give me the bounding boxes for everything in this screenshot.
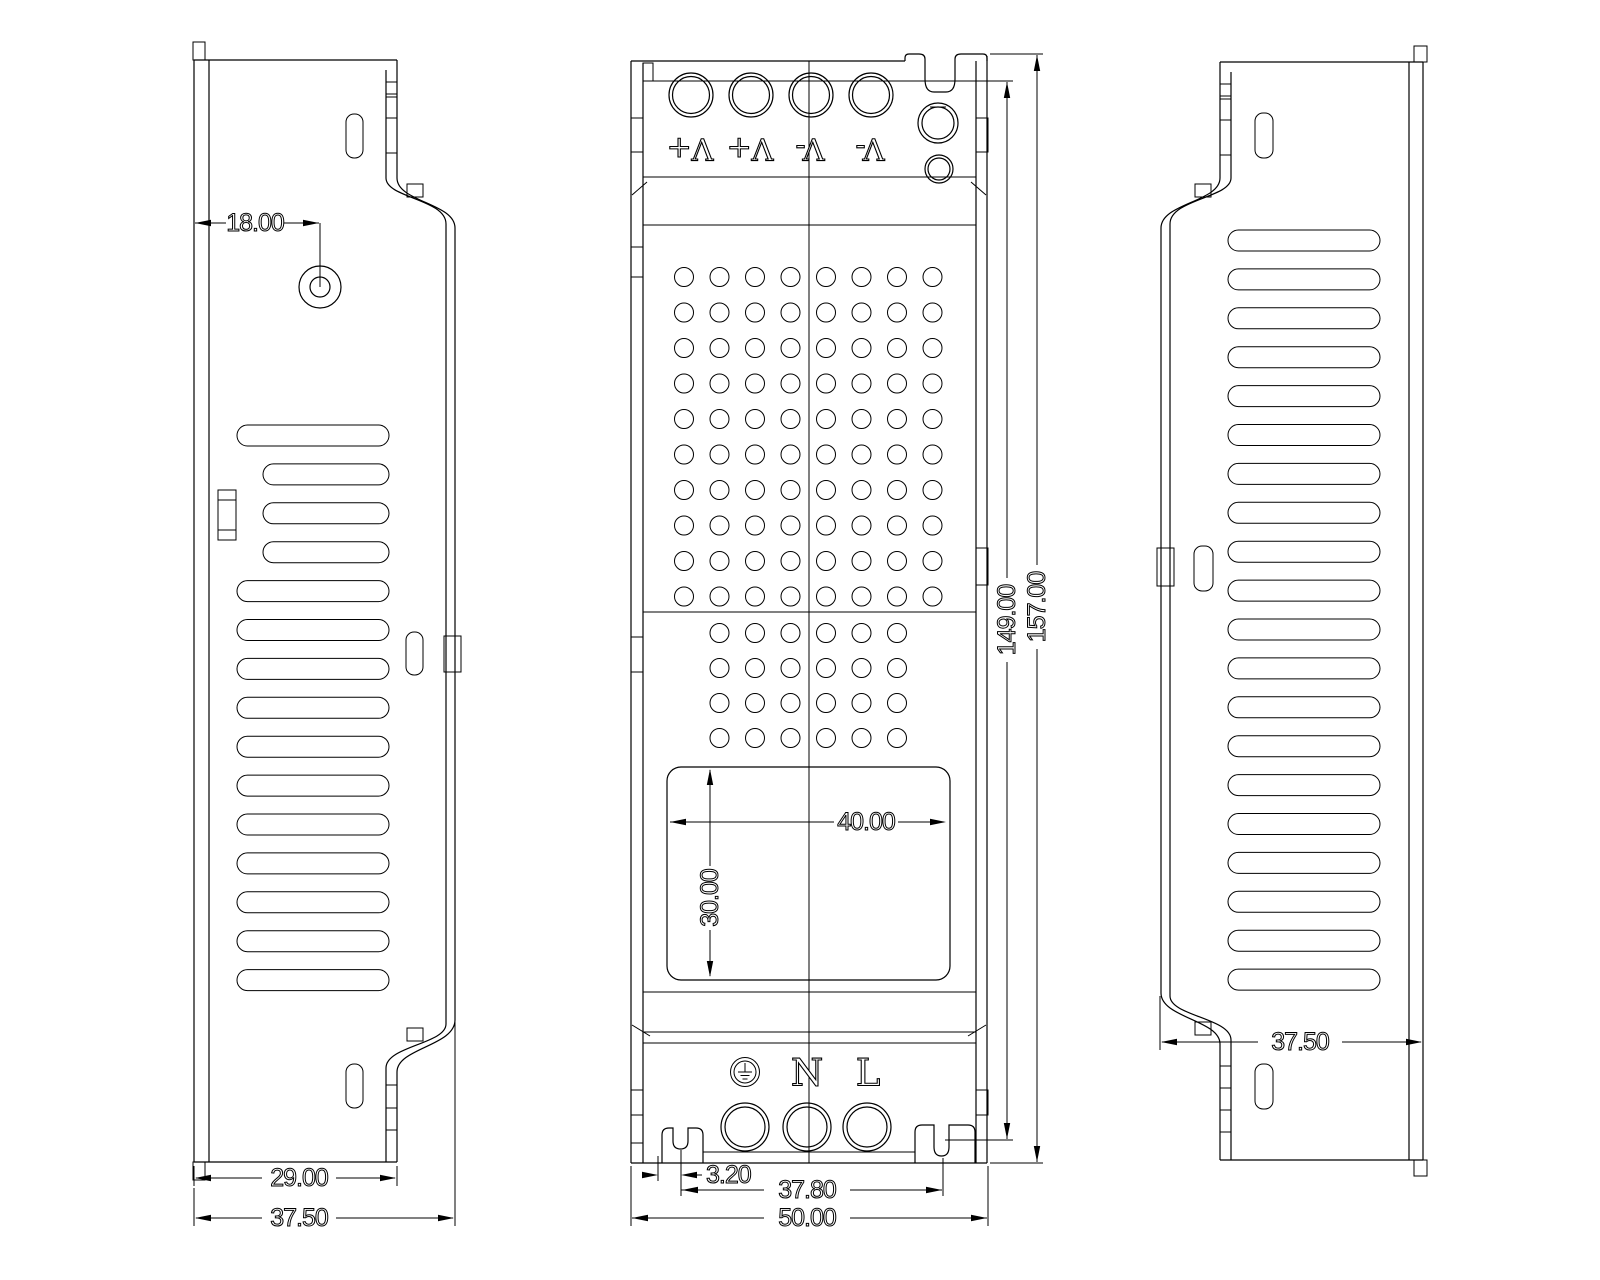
vent-hole — [852, 481, 871, 500]
right-view-latch-ticks-top — [1220, 84, 1231, 155]
vent-slot — [1228, 930, 1380, 951]
vent-hole — [888, 659, 907, 678]
vent-hole — [852, 694, 871, 713]
vent-hole — [781, 339, 800, 358]
vent-hole — [888, 374, 907, 393]
vent-hole — [710, 552, 729, 571]
vent-hole — [710, 339, 729, 358]
vent-hole — [675, 481, 694, 500]
adjust-pot-outer — [918, 103, 958, 143]
vent-slot — [1228, 736, 1380, 757]
vent-slot — [237, 658, 389, 679]
vent-hole — [888, 339, 907, 358]
vent-hole — [852, 445, 871, 464]
vent-hole — [817, 303, 836, 322]
vent-hole — [817, 374, 836, 393]
vent-hole — [852, 410, 871, 429]
vent-slot — [237, 581, 389, 602]
dim-left-overall-width: 37.50 — [194, 1022, 455, 1232]
bottom-notch-right — [915, 1125, 975, 1163]
vent-slot — [1228, 969, 1380, 990]
vent-slot — [1228, 541, 1380, 562]
vent-hole — [888, 552, 907, 571]
vent-hole — [781, 374, 800, 393]
front-top-tab-notch — [905, 54, 987, 92]
dim-inner-length: 149.00 — [945, 81, 1021, 1140]
vent-hole — [746, 552, 765, 571]
vent-hole — [781, 659, 800, 678]
edge-tick — [976, 1090, 988, 1115]
vent-slots-right — [1228, 230, 1380, 990]
vent-slots-left — [237, 425, 389, 991]
vent-hole — [675, 374, 694, 393]
vent-hole — [923, 339, 942, 358]
vent-hole — [675, 587, 694, 606]
vent-slot — [1228, 386, 1380, 407]
vent-hole — [746, 445, 765, 464]
vent-hole — [710, 268, 729, 287]
vent-hole — [675, 339, 694, 358]
left-view-latch-ticks-bottom — [386, 1085, 397, 1130]
corner-step-top-right — [1414, 46, 1427, 62]
vent-slot — [1228, 347, 1380, 368]
vent-hole — [923, 410, 942, 429]
vent-hole — [888, 445, 907, 464]
vent-hole — [746, 659, 765, 678]
vent-hole — [817, 410, 836, 429]
flange-tab-mid — [1157, 548, 1174, 586]
input-terminals — [721, 1103, 891, 1151]
terminal-label: V+ — [667, 131, 715, 166]
vent-slot — [263, 503, 389, 524]
vent-slot — [237, 931, 389, 952]
vent-hole — [923, 445, 942, 464]
vent-hole — [781, 481, 800, 500]
dim-text: 3.20 — [706, 1161, 751, 1189]
dim-text: 157.00 — [1023, 572, 1051, 643]
dim-text: 50.00 — [778, 1204, 836, 1232]
vent-hole — [817, 268, 836, 287]
adjust-pot-inner — [922, 107, 954, 139]
screw-slot-bottom — [1255, 1064, 1273, 1109]
vent-hole — [746, 516, 765, 535]
vent-hole — [675, 552, 694, 571]
side-slot-mid — [1194, 546, 1213, 591]
output-terminals — [669, 73, 893, 117]
vent-slot — [1228, 308, 1380, 329]
vent-hole — [923, 516, 942, 535]
vent-slot — [1228, 697, 1380, 718]
vent-hole — [852, 552, 871, 571]
edge-tick — [976, 548, 988, 585]
edge-tick — [976, 118, 988, 152]
right-side-view: 37.50 — [1157, 46, 1427, 1176]
vent-hole — [746, 694, 765, 713]
dim-text: 29.00 — [270, 1164, 328, 1192]
vent-hole — [781, 552, 800, 571]
vent-slot — [1228, 658, 1380, 679]
drawing-canvas: 18.00 29.00 37.50 — [0, 0, 1600, 1280]
edge-tick — [631, 1090, 643, 1115]
front-view: V+ V+ V- V- 40.00 30.00 N — [631, 54, 1051, 1232]
vent-hole — [710, 729, 729, 748]
vent-hole — [852, 587, 871, 606]
vent-hole — [746, 624, 765, 643]
vent-hole — [817, 481, 836, 500]
vent-hole — [817, 587, 836, 606]
vent-hole — [852, 339, 871, 358]
vent-hole — [675, 516, 694, 535]
vent-slot — [237, 970, 389, 991]
left-view-latch-ticks-top — [386, 82, 397, 153]
vent-hole — [888, 729, 907, 748]
vent-hole — [746, 303, 765, 322]
left-side-view: 18.00 29.00 37.50 — [193, 42, 461, 1232]
bottom-notch-left — [662, 1128, 703, 1163]
vent-slot — [1228, 852, 1380, 873]
earth-ground-icon — [731, 1058, 760, 1087]
vent-hole — [710, 303, 729, 322]
vent-hole — [923, 481, 942, 500]
vent-hole — [746, 481, 765, 500]
vent-slot — [1228, 463, 1380, 484]
vent-hole — [781, 445, 800, 464]
side-slot-mid — [406, 632, 423, 675]
vent-hole — [888, 481, 907, 500]
vent-hole — [852, 303, 871, 322]
vent-hole — [675, 410, 694, 429]
vent-slot — [237, 736, 389, 757]
hole-grid-upper — [675, 268, 943, 607]
vent-slot — [1228, 230, 1380, 251]
dim-text: 37.50 — [270, 1204, 328, 1232]
vent-hole — [781, 624, 800, 643]
vent-hole — [923, 268, 942, 287]
vent-hole — [852, 624, 871, 643]
vent-hole — [888, 410, 907, 429]
vent-hole — [781, 516, 800, 535]
vent-hole — [888, 587, 907, 606]
vent-slot — [263, 464, 389, 485]
vent-hole — [852, 516, 871, 535]
dim-label-height: 30.00 — [696, 769, 724, 977]
vent-hole — [852, 374, 871, 393]
vent-slot — [1228, 891, 1380, 912]
dim-text: 37.50 — [1271, 1028, 1329, 1056]
vent-hole — [710, 481, 729, 500]
vent-hole — [923, 374, 942, 393]
vent-hole — [817, 694, 836, 713]
vent-hole — [710, 445, 729, 464]
vent-hole — [781, 729, 800, 748]
dim-left-hole-offset: 18.00 — [195, 209, 320, 287]
dim-right-overall-width: 37.50 — [1160, 996, 1422, 1056]
vent-hole — [710, 410, 729, 429]
vent-hole — [675, 445, 694, 464]
vent-hole — [817, 659, 836, 678]
vent-hole — [817, 729, 836, 748]
edge-tick — [631, 118, 643, 152]
vent-hole — [710, 516, 729, 535]
vent-slot — [1228, 269, 1380, 290]
vent-hole — [817, 445, 836, 464]
vent-slot — [237, 892, 389, 913]
vent-slot — [237, 853, 389, 874]
vent-hole — [746, 587, 765, 606]
vent-hole — [746, 729, 765, 748]
dim-text: 40.00 — [837, 808, 895, 836]
dim-left-inner-width: 29.00 — [194, 1164, 397, 1192]
vent-hole — [710, 694, 729, 713]
terminal-label: V+ — [727, 131, 775, 166]
corner-step-top-left — [193, 42, 205, 60]
vent-hole — [817, 552, 836, 571]
vent-hole — [852, 268, 871, 287]
vent-hole — [675, 268, 694, 287]
edge-tick — [631, 637, 643, 672]
flange-curve-tab-bottom — [407, 1028, 423, 1041]
dim-text: 30.00 — [696, 869, 724, 927]
dim-text: 149.00 — [993, 585, 1021, 656]
vent-hole — [781, 410, 800, 429]
vent-hole — [746, 339, 765, 358]
vent-slot — [1228, 814, 1380, 835]
vent-hole — [888, 694, 907, 713]
vent-hole — [710, 624, 729, 643]
terminal-label: V- — [855, 131, 885, 166]
vent-hole — [710, 374, 729, 393]
vent-hole — [817, 339, 836, 358]
vent-hole — [710, 587, 729, 606]
dim-text: 18.00 — [226, 209, 284, 237]
vent-slot — [237, 620, 389, 641]
dim-text: 37.80 — [778, 1176, 836, 1204]
indicator-hole-outer — [925, 155, 953, 183]
vent-slot — [1228, 502, 1380, 523]
vent-hole — [710, 659, 729, 678]
vent-hole — [888, 624, 907, 643]
right-view-latch-ticks-bottom — [1220, 1066, 1231, 1132]
neutral-label: N — [791, 1052, 823, 1095]
vent-slot — [1228, 775, 1380, 796]
dim-label-width: 40.00 — [670, 808, 946, 836]
vent-slot — [237, 775, 389, 796]
vent-hole — [746, 374, 765, 393]
screw-slot-top — [1255, 113, 1273, 158]
screw-slot-bottom — [346, 1064, 363, 1108]
vent-hole — [888, 516, 907, 535]
vent-slot — [1228, 425, 1380, 446]
flange-curve-tab-top — [1195, 184, 1211, 197]
vent-hole — [852, 659, 871, 678]
screw-slot-top — [346, 114, 363, 158]
vent-hole — [817, 516, 836, 535]
hole-grid-lower — [710, 624, 907, 748]
vent-hole — [923, 303, 942, 322]
vent-hole — [746, 268, 765, 287]
vent-slot — [237, 425, 389, 446]
vent-hole — [852, 729, 871, 748]
vent-hole — [923, 587, 942, 606]
vent-hole — [746, 410, 765, 429]
vent-slot — [237, 697, 389, 718]
vent-hole — [923, 552, 942, 571]
corner-step-bottom-right — [1414, 1160, 1427, 1176]
line-label: L — [856, 1052, 881, 1095]
terminal-label: V- — [795, 131, 825, 166]
side-latch-window — [218, 490, 236, 540]
vent-hole — [781, 587, 800, 606]
vent-slot — [1228, 619, 1380, 640]
output-terminal-labels: V+ V+ V- V- — [667, 131, 886, 166]
vent-hole — [675, 303, 694, 322]
vent-slot — [1228, 580, 1380, 601]
engineering-drawing: 18.00 29.00 37.50 — [0, 0, 1600, 1280]
vent-hole — [888, 268, 907, 287]
vent-hole — [817, 624, 836, 643]
vent-hole — [888, 303, 907, 322]
vent-hole — [781, 694, 800, 713]
vent-slot — [237, 814, 389, 835]
vent-slot — [263, 542, 389, 563]
edge-tick — [631, 247, 643, 277]
vent-hole — [781, 303, 800, 322]
vent-hole — [781, 268, 800, 287]
